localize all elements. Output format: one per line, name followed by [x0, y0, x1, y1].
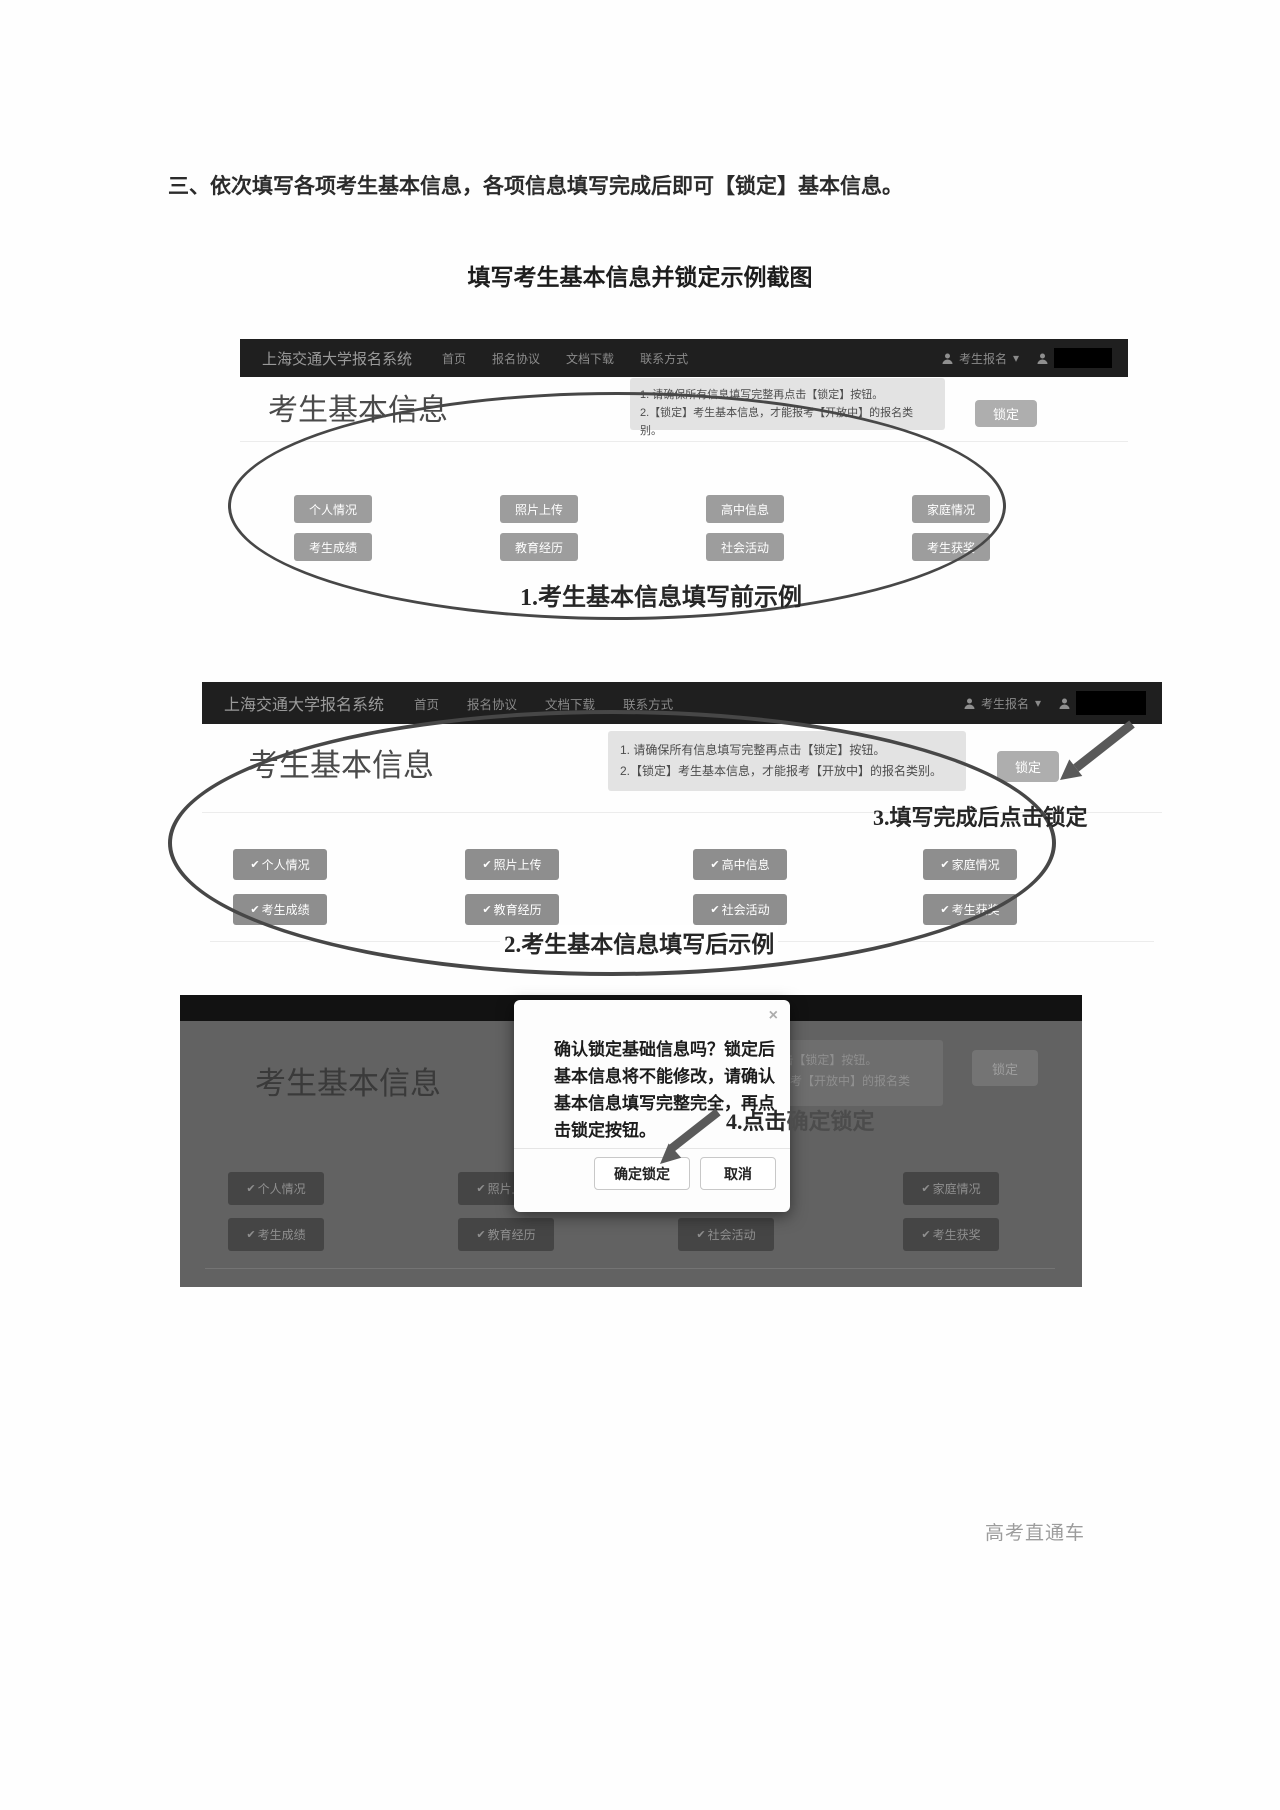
- confirm-lock-button[interactable]: 确定锁定: [594, 1157, 690, 1190]
- section-button-label: 教育经历: [494, 901, 542, 918]
- section-button-photo[interactable]: ✔照片上传: [465, 849, 559, 880]
- user-icon: [1059, 698, 1070, 709]
- notice-line-1: 1. 请确保所有信息填写完整再点击【锁定】按钮。: [640, 386, 935, 404]
- brand[interactable]: 上海交通大学报名系统: [262, 348, 412, 369]
- section-button-label: 教育经历: [488, 1226, 536, 1243]
- section-button-label: 考生获奖: [952, 901, 1000, 918]
- section-button-social[interactable]: ✔社会活动: [678, 1218, 774, 1251]
- lock-button[interactable]: 锁定: [997, 751, 1059, 782]
- dialog-footer-divider: [514, 1148, 790, 1149]
- section-button-highschool[interactable]: 高中信息: [706, 495, 784, 523]
- check-icon: ✔: [940, 903, 949, 916]
- annotation-step-4-prefix: 4.点击: [726, 1109, 787, 1134]
- section-button-label: 考生成绩: [262, 901, 310, 918]
- section-button-label: 家庭情况: [927, 501, 975, 518]
- section-button-awards[interactable]: ✔考生获奖: [903, 1218, 999, 1251]
- nav-links: 首页 报名协议 文档下载 联系方式: [414, 694, 673, 713]
- annotation-caption-1: 1.考生基本信息填写前示例: [520, 577, 802, 612]
- notice-line-1: 1. 请确保所有信息填写完整再点击【锁定】按钮。: [620, 740, 954, 761]
- check-icon: ✔: [482, 858, 491, 871]
- section-button-label: 照片上传: [494, 856, 542, 873]
- section-button-label: 社会活动: [708, 1226, 756, 1243]
- section-button-label: 教育经历: [515, 539, 563, 556]
- navbar-shot2: 上海交通大学报名系统 首页 报名协议 文档下载 联系方式 考生报名 ▾: [202, 682, 1162, 724]
- section-button-awards[interactable]: 考生获奖: [912, 533, 990, 561]
- page-title: 考生基本信息: [268, 385, 448, 429]
- check-icon: ✔: [246, 1182, 255, 1195]
- close-icon[interactable]: ×: [769, 1008, 778, 1024]
- notice-box: 1. 请确保所有信息填写完整再点击【锁定】按钮。 2.【锁定】考生基本信息，才能…: [630, 378, 945, 430]
- section-button-photo[interactable]: 照片上传: [500, 495, 578, 523]
- page-title: 考生基本信息: [248, 740, 434, 785]
- section-button-label: 个人情况: [258, 1180, 306, 1197]
- section-button-label: 照片上传: [515, 501, 563, 518]
- section-button-personal[interactable]: ✔个人情况: [228, 1172, 324, 1205]
- nav-link-downloads[interactable]: 文档下载: [566, 350, 614, 367]
- section-button-social[interactable]: ✔社会活动: [693, 894, 787, 925]
- check-icon: ✔: [476, 1228, 485, 1241]
- check-icon: ✔: [476, 1182, 485, 1195]
- section-button-awards[interactable]: ✔考生获奖: [923, 894, 1017, 925]
- section-button-label: 家庭情况: [952, 856, 1000, 873]
- doc-title: 三、依次填写各项考生基本信息，各项信息填写完成后即可【锁定】基本信息。: [168, 170, 903, 200]
- user-icon: [942, 353, 953, 364]
- notice-line-2: 2.【锁定】考生基本信息，才能报考【开放中】的报名类别。: [620, 761, 954, 782]
- nav-link-contact[interactable]: 联系方式: [640, 350, 688, 367]
- section-button-education[interactable]: ✔教育经历: [458, 1218, 554, 1251]
- user-dropdown[interactable]: 考生报名 ▾: [942, 348, 1112, 368]
- section-button-highschool[interactable]: ✔高中信息: [693, 849, 787, 880]
- check-icon: ✔: [710, 903, 719, 916]
- user-dropdown[interactable]: 考生报名 ▾: [964, 691, 1146, 715]
- cancel-button[interactable]: 取消: [700, 1157, 776, 1190]
- lock-button-dimmed: 锁定: [972, 1050, 1038, 1086]
- annotation-step-3: 3.填写完成后点击锁定: [873, 800, 1088, 832]
- section-button-family[interactable]: ✔家庭情况: [923, 849, 1017, 880]
- check-icon: ✔: [921, 1228, 930, 1241]
- caret-down-icon: ▾: [1013, 351, 1019, 365]
- section-button-label: 考生成绩: [309, 539, 357, 556]
- nav-link-downloads[interactable]: 文档下载: [545, 694, 595, 713]
- section-button-family[interactable]: ✔家庭情况: [903, 1172, 999, 1205]
- check-icon: ✔: [246, 1228, 255, 1241]
- section-button-scores[interactable]: ✔考生成绩: [233, 894, 327, 925]
- annotation-step-4-suffix: 确定锁定: [787, 1109, 875, 1134]
- section-button-label: 考生获奖: [933, 1226, 981, 1243]
- nav-link-contact[interactable]: 联系方式: [623, 694, 673, 713]
- section-button-education[interactable]: ✔教育经历: [465, 894, 559, 925]
- check-icon: ✔: [710, 858, 719, 871]
- annotation-step-4: 4.点击确定锁定: [726, 1104, 875, 1136]
- page-canvas: 三、依次填写各项考生基本信息，各项信息填写完成后即可【锁定】基本信息。 填写考生…: [0, 0, 1280, 1810]
- section-button-label: 考生成绩: [258, 1226, 306, 1243]
- check-icon: ✔: [250, 903, 259, 916]
- user-icon: [964, 698, 975, 709]
- section-button-social[interactable]: 社会活动: [706, 533, 784, 561]
- redacted-username: [1054, 348, 1112, 368]
- check-icon: ✔: [482, 903, 491, 916]
- section-button-label: 家庭情况: [933, 1180, 981, 1197]
- user-dropdown-label: 考生报名: [981, 695, 1029, 712]
- caret-down-icon: ▾: [1035, 696, 1041, 710]
- section-button-label: 高中信息: [722, 856, 770, 873]
- section-button-scores[interactable]: ✔考生成绩: [228, 1218, 324, 1251]
- check-icon: ✔: [940, 858, 949, 871]
- lock-button[interactable]: 锁定: [975, 400, 1037, 427]
- notice-box: 1. 请确保所有信息填写完整再点击【锁定】按钮。 2.【锁定】考生基本信息，才能…: [608, 731, 966, 791]
- section-button-label: 个人情况: [309, 501, 357, 518]
- section-button-scores[interactable]: 考生成绩: [294, 533, 372, 561]
- check-icon: ✔: [696, 1228, 705, 1241]
- section-button-label: 社会活动: [721, 539, 769, 556]
- notice-line-2: 2.【锁定】考生基本信息，才能报考【开放中】的报名类别。: [640, 404, 935, 440]
- nav-link-agreement[interactable]: 报名协议: [492, 350, 540, 367]
- redacted-username: [1076, 691, 1146, 715]
- brand[interactable]: 上海交通大学报名系统: [224, 691, 384, 715]
- section-button-personal[interactable]: ✔个人情况: [233, 849, 327, 880]
- section-button-family[interactable]: 家庭情况: [912, 495, 990, 523]
- watermark: 高考直通车: [985, 1518, 1085, 1545]
- annotation-caption-2: 2.考生基本信息填写后示例: [500, 925, 778, 959]
- nav-link-home[interactable]: 首页: [414, 694, 439, 713]
- doc-subtitle: 填写考生基本信息并锁定示例截图: [340, 258, 940, 292]
- divider-dimmed: [205, 1268, 1055, 1269]
- section-button-label: 社会活动: [722, 901, 770, 918]
- page-title-dimmed: 考生基本信息: [255, 1058, 441, 1103]
- navbar-shot1: 上海交通大学报名系统 首页 报名协议 文档下载 联系方式 考生报名 ▾: [240, 339, 1128, 377]
- check-icon: ✔: [250, 858, 259, 871]
- nav-link-home[interactable]: 首页: [442, 350, 466, 367]
- check-icon: ✔: [921, 1182, 930, 1195]
- section-button-label: 考生获奖: [927, 539, 975, 556]
- section-button-personal[interactable]: 个人情况: [294, 495, 372, 523]
- nav-links: 首页 报名协议 文档下载 联系方式: [442, 350, 688, 367]
- section-button-label: 个人情况: [262, 856, 310, 873]
- user-dropdown-label: 考生报名: [959, 350, 1007, 367]
- section-button-education[interactable]: 教育经历: [500, 533, 578, 561]
- section-button-label: 高中信息: [721, 501, 769, 518]
- user-icon: [1037, 353, 1048, 364]
- nav-link-agreement[interactable]: 报名协议: [467, 694, 517, 713]
- divider: [240, 441, 1128, 442]
- arrow-annotation-to-lock: [1046, 714, 1138, 792]
